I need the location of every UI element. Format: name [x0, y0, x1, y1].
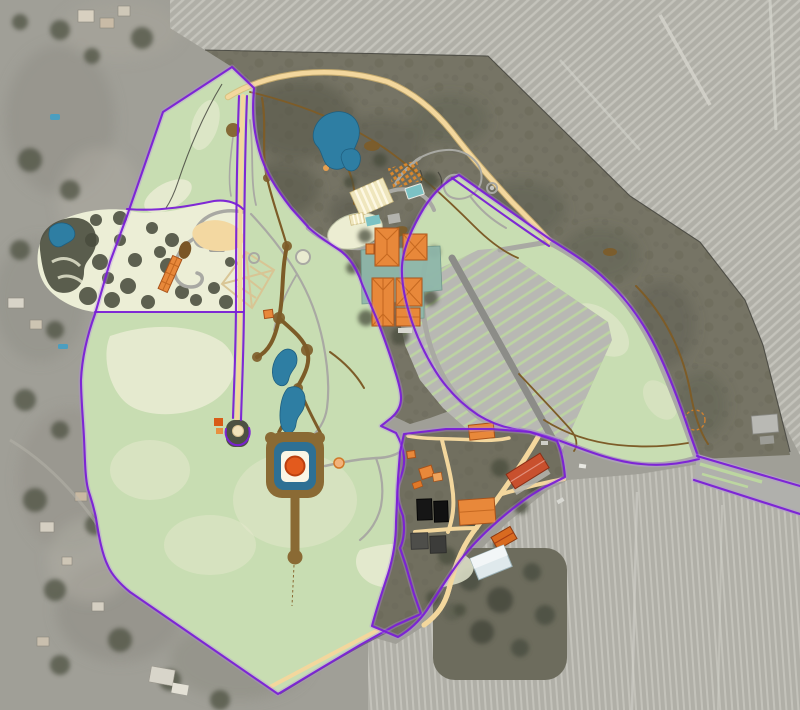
map-viewport[interactable] — [0, 0, 800, 710]
car — [541, 441, 548, 445]
farm-shed — [432, 472, 442, 481]
lawn-hut — [263, 309, 273, 318]
shed — [214, 418, 223, 426]
farm-shed — [407, 450, 416, 458]
shed — [216, 428, 223, 434]
site-plan-map[interactable] — [0, 0, 800, 710]
path-marker-dot — [334, 458, 344, 468]
fountain-center — [286, 457, 305, 476]
winery-north-hall — [375, 228, 399, 266]
winery-annex — [366, 244, 374, 254]
keyhole-stem — [291, 497, 300, 551]
barn-large — [458, 498, 496, 525]
swimming-pool — [50, 114, 60, 120]
